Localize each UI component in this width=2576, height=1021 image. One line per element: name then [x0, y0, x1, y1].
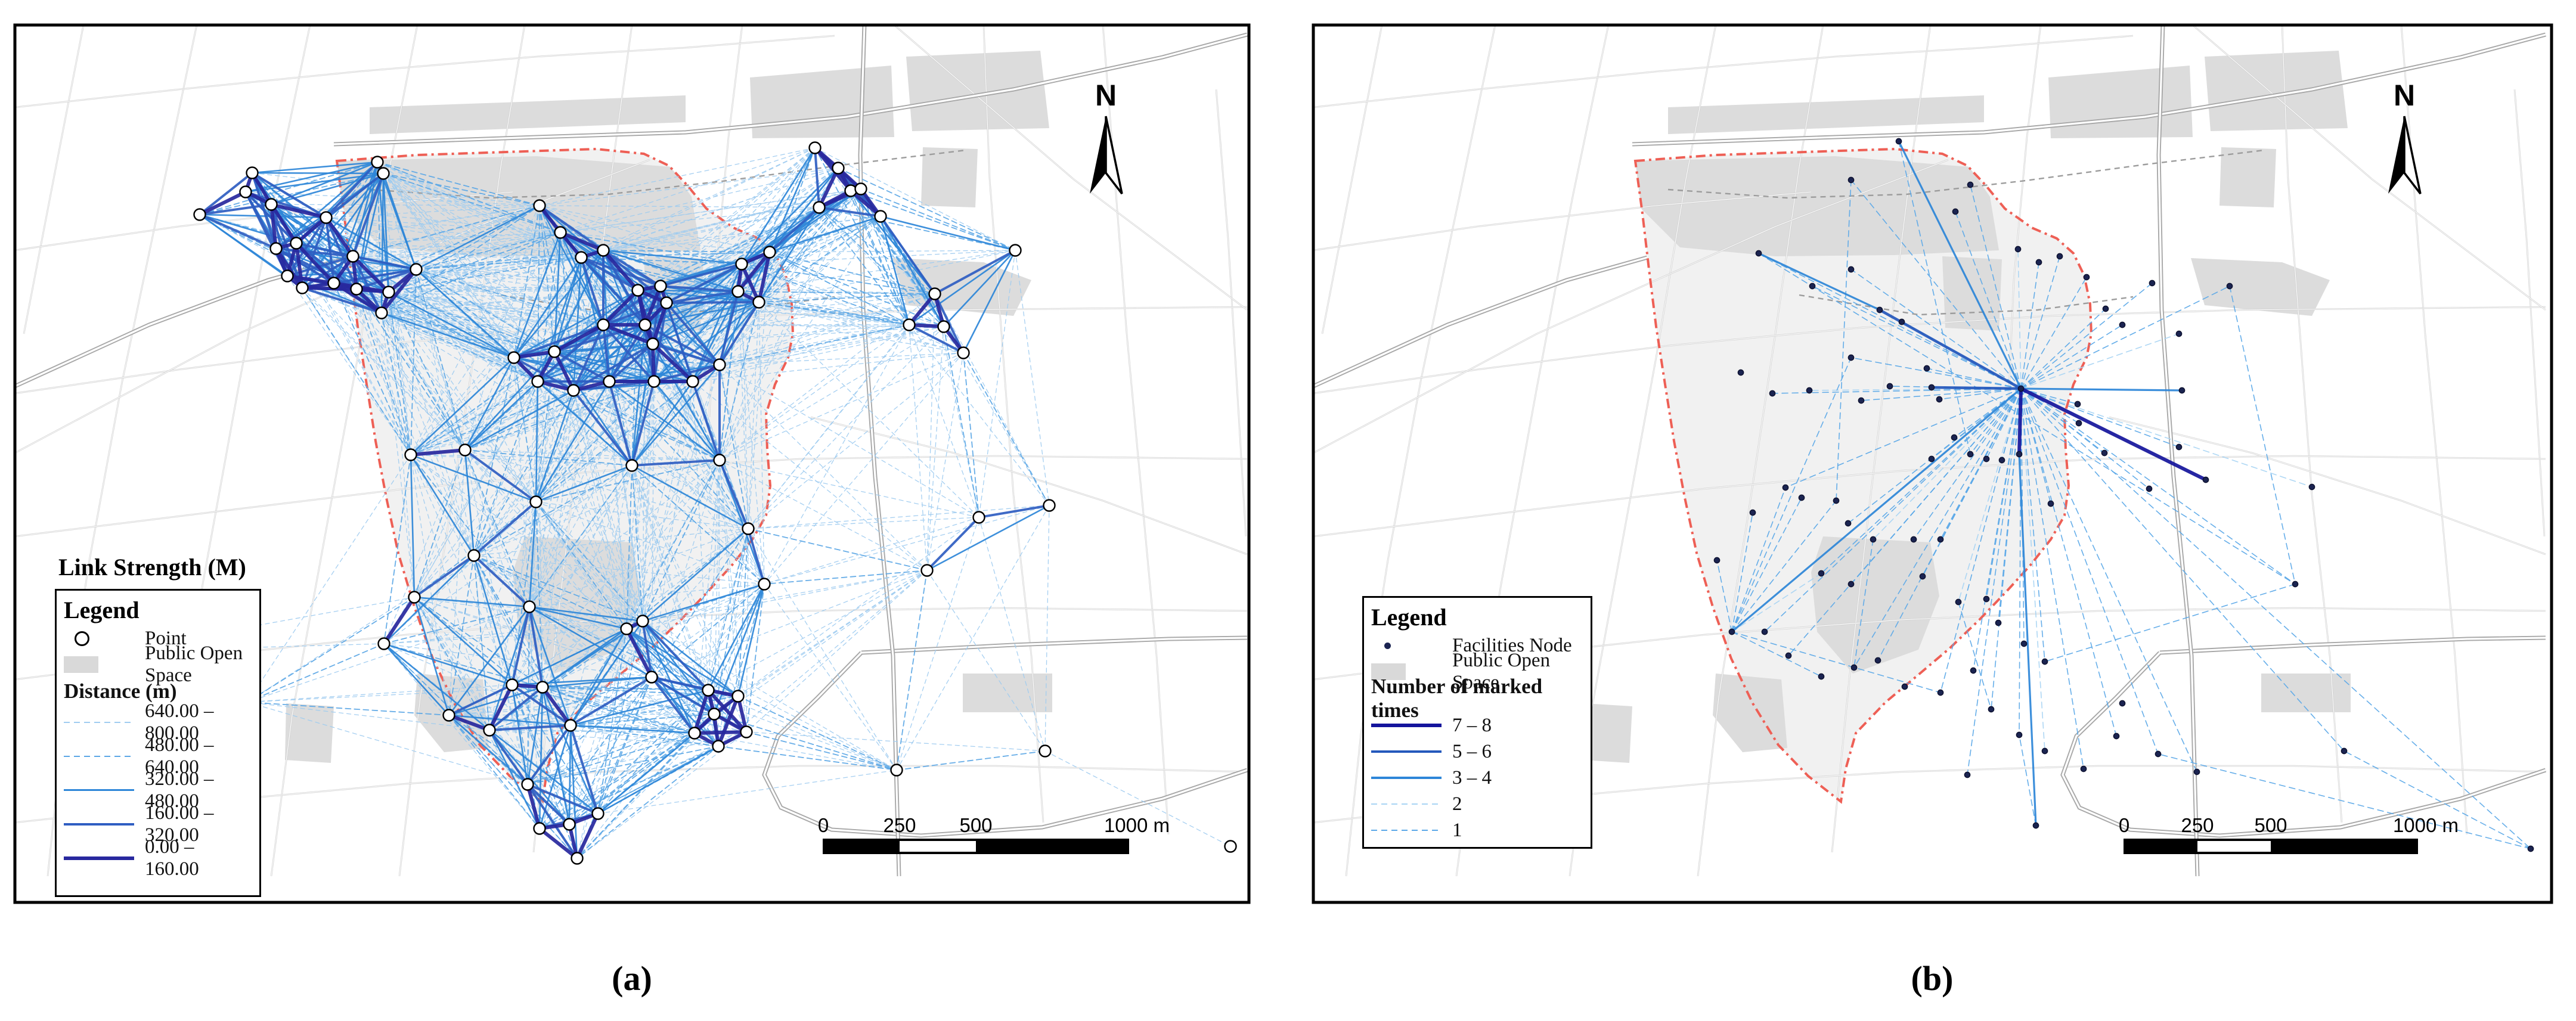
legend-b-box: Legend Facilities NodePublic Open SpaceN…	[1362, 596, 1592, 849]
point-node	[383, 287, 395, 298]
caption-panel-a: (a)	[612, 958, 652, 998]
legend-b-header: Legend	[1371, 604, 1583, 632]
point-node	[376, 308, 388, 319]
point-node	[469, 550, 480, 561]
point-node	[689, 728, 700, 739]
facility-node-symbol	[1384, 643, 1391, 649]
point-node	[593, 808, 604, 820]
facility-node	[1887, 383, 1892, 389]
facility-node	[2076, 420, 2081, 426]
legend-a-header: Legend	[64, 597, 252, 625]
legend-a-rows: PointPublic Open SpaceDistance (m)640.00…	[64, 625, 252, 875]
facility-node	[1756, 250, 1761, 256]
legend-marked-times-class: 1	[1452, 820, 1462, 842]
facility-node	[2528, 846, 2533, 851]
facility-node	[1951, 435, 1957, 440]
point-node	[709, 709, 720, 720]
facility-node	[2341, 748, 2346, 753]
point-node	[687, 376, 699, 387]
facility-node	[2103, 306, 2108, 311]
facility-node	[1929, 384, 1934, 390]
point-node	[810, 142, 821, 154]
facility-node	[2179, 387, 2184, 393]
point-node	[733, 286, 744, 297]
legend-a-box: Legend PointPublic Open SpaceDistance (m…	[55, 589, 261, 897]
point-node	[736, 259, 748, 270]
facility-node	[1750, 510, 1755, 515]
point-node	[524, 601, 535, 613]
facility-node	[1955, 599, 1961, 604]
point-node	[633, 285, 644, 296]
public-open-space	[906, 51, 1049, 131]
facility-node	[1938, 536, 1943, 542]
facility-node	[1967, 451, 1973, 457]
facility-node	[2292, 581, 2298, 586]
point-node	[814, 202, 825, 213]
facility-node	[2036, 259, 2041, 265]
facility-node	[1714, 557, 1719, 563]
public-open-space	[963, 674, 1052, 712]
facility-node	[1738, 370, 1743, 375]
point-node	[855, 184, 867, 195]
facility-node	[1988, 706, 1994, 712]
point-node	[733, 691, 744, 702]
point-node	[351, 284, 362, 295]
facility-node	[1848, 581, 1853, 586]
scalebar-segment	[2197, 841, 2271, 852]
facility-node	[2146, 486, 2152, 491]
facility-node	[1875, 657, 1880, 663]
legend-marked-times-class: 3 – 4	[1452, 767, 1492, 789]
point-node	[348, 251, 359, 262]
point-node	[661, 297, 672, 309]
point-node	[378, 168, 389, 179]
point-node	[598, 245, 609, 256]
scalebar-segment	[900, 841, 976, 852]
point-node	[754, 297, 765, 308]
facility-node	[2176, 444, 2181, 449]
scalebar-tick: 250	[883, 814, 916, 836]
facility-node	[1902, 684, 1907, 689]
facility-node	[1870, 536, 1876, 542]
point-node	[247, 167, 258, 179]
legend-line-swatch	[64, 856, 134, 860]
point-node	[922, 565, 933, 576]
legend-line-swatch	[64, 789, 134, 791]
public-open-space	[2205, 51, 2348, 131]
facility-node	[1938, 690, 1943, 695]
legend-a-title: Link Strength (M)	[58, 553, 246, 581]
scalebar-tick: 500	[959, 814, 992, 836]
point-node	[759, 579, 770, 590]
facility-node	[1809, 283, 1815, 288]
facility-node	[1911, 536, 1916, 542]
point-node	[297, 283, 308, 294]
scalebar-tick: 250	[2181, 814, 2214, 836]
legend-marked-times-class: 2	[1452, 793, 1462, 815]
point-symbol	[75, 631, 89, 646]
scalebar-tick: 1000 m	[2393, 814, 2459, 836]
scalebar-tick: 0	[2119, 814, 2129, 836]
legend-line-swatch	[1371, 724, 1442, 727]
point-node	[576, 252, 587, 263]
open-space-swatch	[64, 656, 98, 673]
facility-node	[2155, 751, 2160, 756]
facility-node	[1983, 596, 1989, 601]
facility-node	[2081, 766, 2086, 771]
north-label: N	[2394, 79, 2415, 112]
point-node	[271, 243, 282, 255]
point-node	[291, 238, 302, 249]
public-open-space	[750, 66, 894, 138]
scalebar-tick: 1000 m	[1104, 814, 1170, 836]
legend-distance-class: 0.00 – 160.00	[145, 836, 252, 880]
facility-node	[1845, 520, 1850, 526]
point-node	[1040, 746, 1051, 757]
point-node	[714, 359, 726, 371]
point-node	[741, 727, 752, 738]
facility-node	[1999, 457, 2004, 463]
facility-node	[1967, 182, 1973, 187]
point-node	[564, 819, 575, 830]
point-node	[640, 319, 651, 331]
point-node	[1225, 841, 1236, 852]
point-node	[534, 823, 545, 834]
map-canvas: 02505001000 m02505001000 mNN	[0, 0, 2576, 1021]
point-node	[572, 853, 583, 864]
facility-node	[2176, 331, 2181, 336]
point-node	[1044, 500, 1055, 511]
facility-node	[2194, 769, 2199, 774]
figure-two-map-panels: 02505001000 m02505001000 mNN Link Streng…	[0, 0, 2576, 1021]
facility-node	[2016, 732, 2022, 737]
facility-node	[2057, 253, 2062, 259]
legend-marked-times-class: 5 – 6	[1452, 741, 1492, 763]
facility-node	[2149, 280, 2155, 285]
point-node	[655, 281, 667, 292]
legend-line-swatch	[64, 756, 134, 757]
point-node	[460, 445, 471, 456]
facility-node	[1769, 390, 1775, 396]
point-node	[646, 672, 658, 683]
point-node	[764, 247, 776, 258]
point-node	[621, 623, 633, 635]
facility-node	[1983, 456, 1989, 461]
point-node	[531, 496, 542, 508]
legend-line-swatch	[1371, 750, 1442, 753]
facility-node	[1877, 307, 1882, 312]
point-node	[958, 347, 969, 359]
facility-node	[1970, 668, 1976, 673]
point-node	[328, 278, 340, 289]
facility-node	[2075, 401, 2080, 406]
point-node	[974, 512, 985, 523]
point-node	[532, 376, 544, 387]
facility-node	[1762, 629, 1767, 634]
facility-node	[1833, 498, 1839, 503]
point-node	[484, 725, 495, 736]
point-node	[938, 321, 950, 333]
link-edge	[1932, 387, 2021, 389]
point-node	[565, 720, 576, 731]
facility-node	[2048, 501, 2053, 506]
point-node	[875, 211, 886, 222]
facility-node	[1896, 138, 1901, 144]
point-node	[627, 460, 638, 471]
public-open-space	[2219, 147, 2276, 207]
facility-node	[1848, 266, 1853, 272]
facility-node	[1924, 365, 1929, 371]
point-node	[409, 592, 420, 603]
facility-node	[2203, 477, 2208, 482]
public-open-space	[1635, 156, 1999, 256]
facility-node	[1964, 772, 1970, 777]
facility-node	[2042, 659, 2047, 664]
scalebar-tick: 0	[818, 814, 829, 836]
facility-node	[1848, 177, 1853, 182]
point-node	[743, 523, 754, 535]
facility-node	[2113, 733, 2119, 738]
legend-line-swatch	[1371, 777, 1442, 778]
point-node	[537, 682, 548, 693]
public-open-space	[921, 147, 978, 207]
facility-node	[1729, 629, 1734, 634]
facility-node	[2101, 450, 2107, 455]
point-node	[555, 227, 566, 238]
point-node	[929, 288, 941, 300]
point-node	[833, 163, 844, 174]
legend-marked-times-class: 7 – 8	[1452, 715, 1492, 737]
legend-line-swatch	[64, 823, 134, 826]
point-node	[372, 157, 383, 168]
point-node	[703, 685, 714, 696]
link-edge	[2019, 389, 2021, 454]
point-node	[194, 209, 206, 221]
public-open-space	[2261, 674, 2351, 712]
point-node	[904, 319, 915, 331]
point-node	[604, 376, 615, 387]
facility-node	[2018, 386, 2023, 391]
facility-node	[2021, 641, 2026, 646]
point-node	[714, 455, 726, 466]
facility-node	[1929, 456, 1934, 461]
facility-node	[1952, 209, 1958, 214]
facility-node	[1858, 398, 1864, 403]
link-edge	[667, 302, 759, 303]
legend-line-swatch	[64, 722, 134, 723]
point-node	[598, 319, 609, 331]
facility-node	[2119, 322, 2125, 327]
caption-panel-b: (b)	[1911, 958, 1954, 998]
facility-node	[1899, 319, 1904, 324]
legend-line-swatch	[1371, 803, 1442, 805]
legend-line-swatch	[1371, 830, 1442, 831]
facility-node	[2015, 246, 2020, 252]
facility-node	[2042, 748, 2047, 753]
facility-node	[1799, 495, 1804, 500]
point-node	[240, 187, 252, 198]
facility-node	[1785, 653, 1791, 658]
point-node	[379, 638, 390, 650]
facility-node	[1920, 573, 1925, 579]
facility-node	[2119, 700, 2125, 706]
facility-node	[1995, 620, 2001, 625]
point-node	[1010, 245, 1021, 256]
north-label: N	[1095, 79, 1117, 112]
facility-node	[1851, 665, 1856, 670]
facility-node	[1848, 355, 1853, 360]
facility-node	[1783, 485, 1788, 490]
point-node	[321, 212, 332, 224]
facility-node	[1936, 396, 1942, 402]
point-node	[647, 339, 659, 350]
facility-node	[2309, 484, 2314, 489]
point-node	[549, 346, 560, 358]
point-node	[534, 200, 545, 212]
point-node	[637, 616, 649, 627]
point-node	[713, 741, 724, 752]
point-node	[266, 199, 277, 210]
facility-node	[1806, 387, 1812, 393]
facility-node	[2033, 823, 2038, 828]
point-node	[568, 385, 579, 396]
point-node	[405, 449, 417, 461]
public-open-space	[2048, 66, 2193, 138]
scalebar-tick: 500	[2254, 814, 2287, 836]
facility-node	[2227, 283, 2232, 288]
legend-b-rows: Facilities NodePublic Open SpaceNumber o…	[1371, 632, 1583, 843]
point-node	[891, 765, 903, 776]
point-node	[282, 271, 293, 282]
point-node	[522, 779, 534, 790]
link-edge	[695, 732, 746, 733]
point-node	[444, 710, 455, 721]
point-node	[411, 264, 422, 275]
facility-node	[1818, 674, 1824, 679]
facility-node	[1818, 570, 1824, 576]
point-node	[507, 679, 518, 691]
point-node	[845, 185, 857, 197]
facility-node	[2016, 451, 2022, 457]
point-node	[649, 376, 660, 387]
facility-node	[2084, 274, 2089, 280]
point-node	[509, 352, 520, 364]
